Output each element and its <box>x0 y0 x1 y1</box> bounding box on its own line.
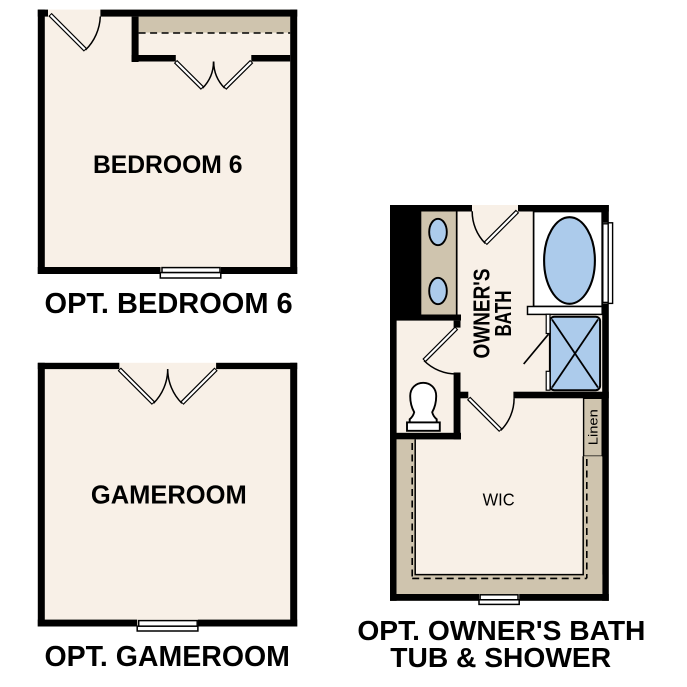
svg-text:BEDROOM 6: BEDROOM 6 <box>93 152 243 179</box>
svg-text:TUB & SHOWER: TUB & SHOWER <box>390 641 611 673</box>
svg-text:WIC: WIC <box>483 489 515 509</box>
svg-text:OPT. GAMEROOM: OPT. GAMEROOM <box>44 641 289 673</box>
svg-text:GAMEROOM: GAMEROOM <box>91 481 247 509</box>
svg-text:Linen: Linen <box>586 409 601 445</box>
svg-text:BATH: BATH <box>490 291 516 337</box>
svg-text:OPT. BEDROOM 6: OPT. BEDROOM 6 <box>45 288 293 320</box>
